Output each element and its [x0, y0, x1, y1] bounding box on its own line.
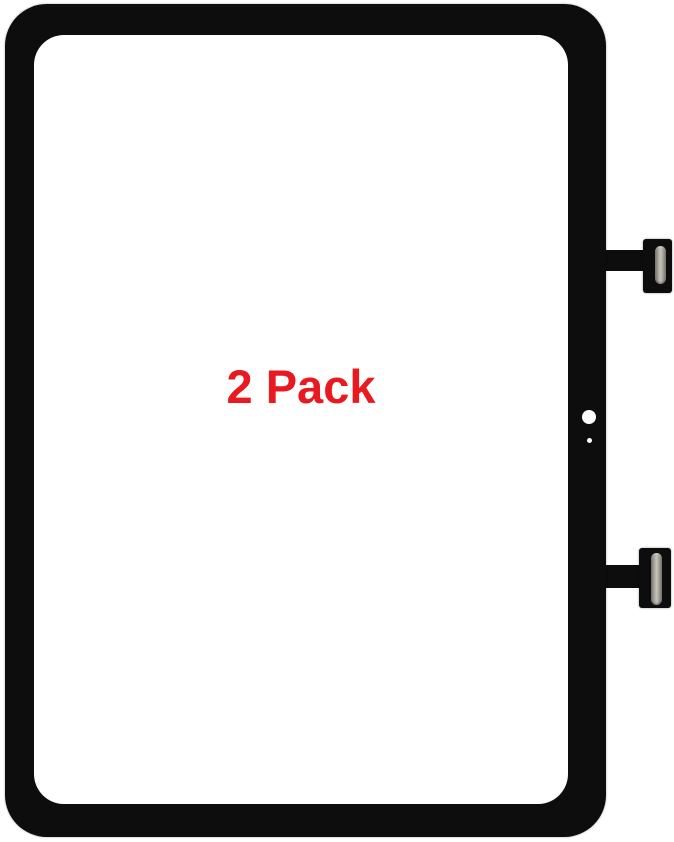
product-photo: 2 Pack	[0, 0, 674, 842]
top-flex-cable	[602, 250, 646, 271]
bottom-connector-pad	[639, 548, 671, 608]
bottom-flex-cable	[602, 565, 642, 588]
bottom-connector-slot-icon	[651, 553, 662, 605]
screen-glass	[34, 35, 568, 804]
camera-hole	[582, 410, 596, 424]
digitizer-frame	[5, 4, 606, 837]
pack-count-label: 2 Pack	[34, 362, 568, 412]
top-connector-slot-icon	[655, 246, 666, 284]
microphone-hole	[587, 438, 592, 443]
top-connector-pad	[643, 239, 672, 293]
